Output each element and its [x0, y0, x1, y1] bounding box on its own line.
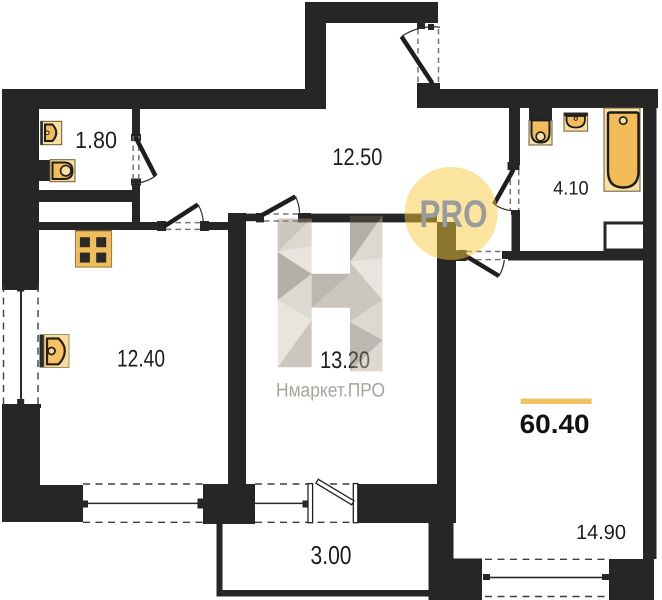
svg-text:14.90: 14.90 — [576, 521, 626, 544]
svg-text:12.50: 12.50 — [332, 144, 382, 171]
svg-text:PRO: PRO — [420, 193, 488, 236]
svg-text:3.00: 3.00 — [311, 540, 352, 570]
svg-text:1.80: 1.80 — [75, 127, 117, 153]
svg-text:Нмаркет.ПРО: Нмаркет.ПРО — [276, 380, 385, 402]
svg-text:4.10: 4.10 — [553, 178, 589, 199]
svg-text:60.40: 60.40 — [520, 409, 590, 439]
svg-text:12.40: 12.40 — [117, 346, 165, 373]
